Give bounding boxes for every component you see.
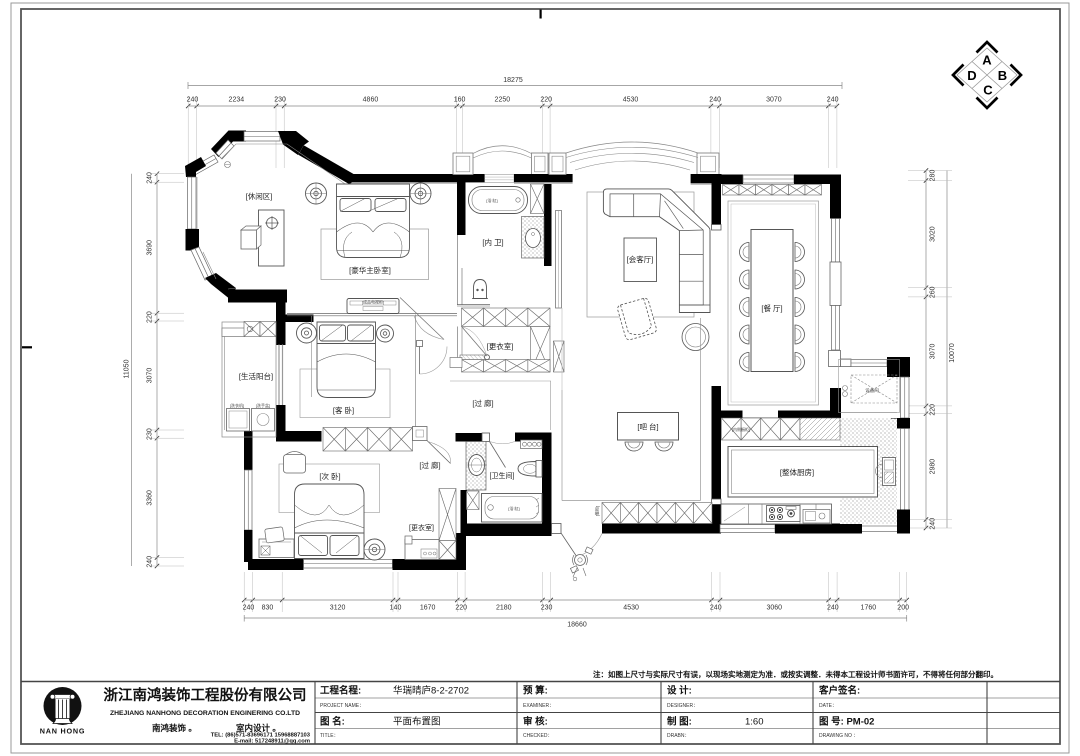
svg-text:[鞋柜]: [鞋柜] <box>594 506 600 516</box>
svg-text:18275: 18275 <box>503 77 523 84</box>
svg-text:[过 廊]: [过 廊] <box>472 398 493 408</box>
svg-text:2250: 2250 <box>495 97 511 104</box>
svg-text:DRABN：: DRABN： <box>667 733 690 739</box>
svg-text:[浴 缸]: [浴 缸] <box>486 197 497 203</box>
svg-text:工程名程:: 工程名程: <box>320 685 361 697</box>
svg-text:240: 240 <box>827 605 839 612</box>
svg-text:18660: 18660 <box>567 622 587 629</box>
svg-text:[豪华主卧室]: [豪华主卧室] <box>349 265 391 275</box>
svg-text:3070: 3070 <box>766 97 782 104</box>
svg-text:[卫生间]: [卫生间] <box>490 471 515 480</box>
svg-text:[会客厅]: [会客厅] <box>627 254 654 264</box>
svg-text:预 算:: 预 算: <box>523 685 548 697</box>
svg-text:室内设计 。: 室内设计 。 <box>236 723 281 733</box>
svg-text:审 核:: 审 核: <box>523 716 548 728</box>
svg-text:[更衣室]: [更衣室] <box>487 341 514 351</box>
svg-text:10070: 10070 <box>949 343 956 363</box>
svg-text:TITLE：: TITLE： <box>320 733 339 739</box>
svg-text:A: A <box>982 53 992 68</box>
svg-text:DATE：: DATE： <box>819 703 837 709</box>
svg-text:3120: 3120 <box>330 605 346 612</box>
svg-text:[浴 缸]: [浴 缸] <box>508 505 519 511</box>
svg-text:[洗手盆]: [洗手盆] <box>256 402 270 408</box>
svg-text:[洗衣机]: [洗衣机] <box>230 402 244 408</box>
svg-text:客户签名:: 客户签名: <box>818 685 860 697</box>
svg-text:220: 220 <box>455 605 467 612</box>
svg-text:230: 230 <box>274 97 286 104</box>
svg-text:280: 280 <box>930 170 937 182</box>
svg-text:EXAMINER：: EXAMINER： <box>523 703 554 709</box>
svg-text:240: 240 <box>709 97 721 104</box>
svg-text:DRAWING NO ：: DRAWING NO ： <box>819 733 858 739</box>
svg-text:140: 140 <box>390 605 402 612</box>
svg-text:4530: 4530 <box>623 97 639 104</box>
svg-text:260: 260 <box>930 286 937 298</box>
svg-text:设 计:: 设 计: <box>667 685 692 697</box>
svg-text:230: 230 <box>147 428 154 440</box>
svg-text:3020: 3020 <box>930 226 937 242</box>
svg-text:3070: 3070 <box>147 368 154 384</box>
svg-text:220: 220 <box>147 311 154 323</box>
svg-text:C: C <box>983 83 993 98</box>
svg-text:3360: 3360 <box>147 490 154 506</box>
svg-text:图 号: PM-02: 图 号: PM-02 <box>819 717 874 728</box>
svg-text:[次 卧]: [次 卧] <box>319 471 340 481</box>
svg-text:3060: 3060 <box>767 605 783 612</box>
svg-text:PROJECT NAME：: PROJECT NAME： <box>320 703 364 709</box>
svg-text:240: 240 <box>710 605 722 612</box>
svg-text:220: 220 <box>540 97 552 104</box>
svg-text:230: 230 <box>541 605 553 612</box>
svg-text:[吧 台]: [吧 台] <box>637 422 658 432</box>
svg-text:[生活阳台]: [生活阳台] <box>239 371 273 381</box>
svg-text:240: 240 <box>930 518 937 530</box>
svg-text:[整体厨房]: [整体厨房] <box>780 467 814 477</box>
svg-text:220: 220 <box>930 404 937 416</box>
svg-text:ZHEJIANG NANHONG DECORATION: ZHEJIANG NANHONG DECORATION ENGINERING C… <box>110 710 300 717</box>
svg-text:E-mail: 517248911@qq.com: E-mail: 517248911@qq.com <box>234 738 310 744</box>
svg-text:3690: 3690 <box>147 240 154 256</box>
svg-text:240: 240 <box>827 97 839 104</box>
svg-text:[更衣室]: [更衣室] <box>409 523 434 532</box>
svg-text:DESIGNER：: DESIGNER： <box>667 703 698 709</box>
svg-text:160: 160 <box>454 97 466 104</box>
svg-text:[休闲区]: [休闲区] <box>246 191 273 201</box>
svg-text:1:60: 1:60 <box>745 717 764 728</box>
svg-text:1670: 1670 <box>420 605 436 612</box>
svg-text:[内侧橱柜]: [内侧橱柜] <box>732 426 750 432</box>
svg-text:2234: 2234 <box>229 97 245 104</box>
svg-text:4860: 4860 <box>363 97 379 104</box>
svg-text:3070: 3070 <box>930 344 937 360</box>
svg-text:华瑞晴庐8-2-2702: 华瑞晴庐8-2-2702 <box>393 685 469 697</box>
svg-text:注：如图上尺寸与实际尺寸有误，以现场实地测定为准．或按实调整: 注：如图上尺寸与实际尺寸有误，以现场实地测定为准．或按实调整．未得本工程设计师书… <box>593 669 998 679</box>
svg-text:1760: 1760 <box>861 605 877 612</box>
svg-text:2180: 2180 <box>496 605 512 612</box>
svg-text:NAN HONG: NAN HONG <box>40 727 86 736</box>
svg-text:[内 卫]: [内 卫] <box>482 237 503 247</box>
svg-text:B: B <box>998 68 1007 83</box>
svg-text:240: 240 <box>147 556 154 568</box>
svg-text:[客 卧]: [客 卧] <box>333 405 354 415</box>
svg-text:D: D <box>967 68 976 83</box>
svg-text:浙江南鸿装饰工程股份有限公司: 浙江南鸿装饰工程股份有限公司 <box>104 686 307 704</box>
svg-text:4530: 4530 <box>623 605 639 612</box>
svg-text:240: 240 <box>243 605 255 612</box>
svg-text:11050: 11050 <box>124 359 131 378</box>
svg-text:制 图:: 制 图: <box>667 716 692 728</box>
svg-text:200: 200 <box>897 605 909 612</box>
svg-text:240: 240 <box>147 172 154 184</box>
svg-text:图 名:: 图 名: <box>320 716 345 728</box>
svg-text:830: 830 <box>262 605 274 612</box>
svg-text:平面布置图: 平面布置图 <box>393 716 441 728</box>
svg-text:设备间: 设备间 <box>865 387 879 394</box>
svg-text:[餐 厅]: [餐 厅] <box>761 304 782 313</box>
svg-text:[过 廊]: [过 廊] <box>419 460 440 470</box>
svg-text:南鸿装饰 。: 南鸿装饰 。 <box>152 723 197 733</box>
svg-text:240: 240 <box>187 97 199 104</box>
svg-text:2980: 2980 <box>930 459 937 475</box>
svg-text:CHECKED：: CHECKED： <box>523 733 552 739</box>
svg-text:[成品电视柜]: [成品电视柜] <box>362 299 384 305</box>
